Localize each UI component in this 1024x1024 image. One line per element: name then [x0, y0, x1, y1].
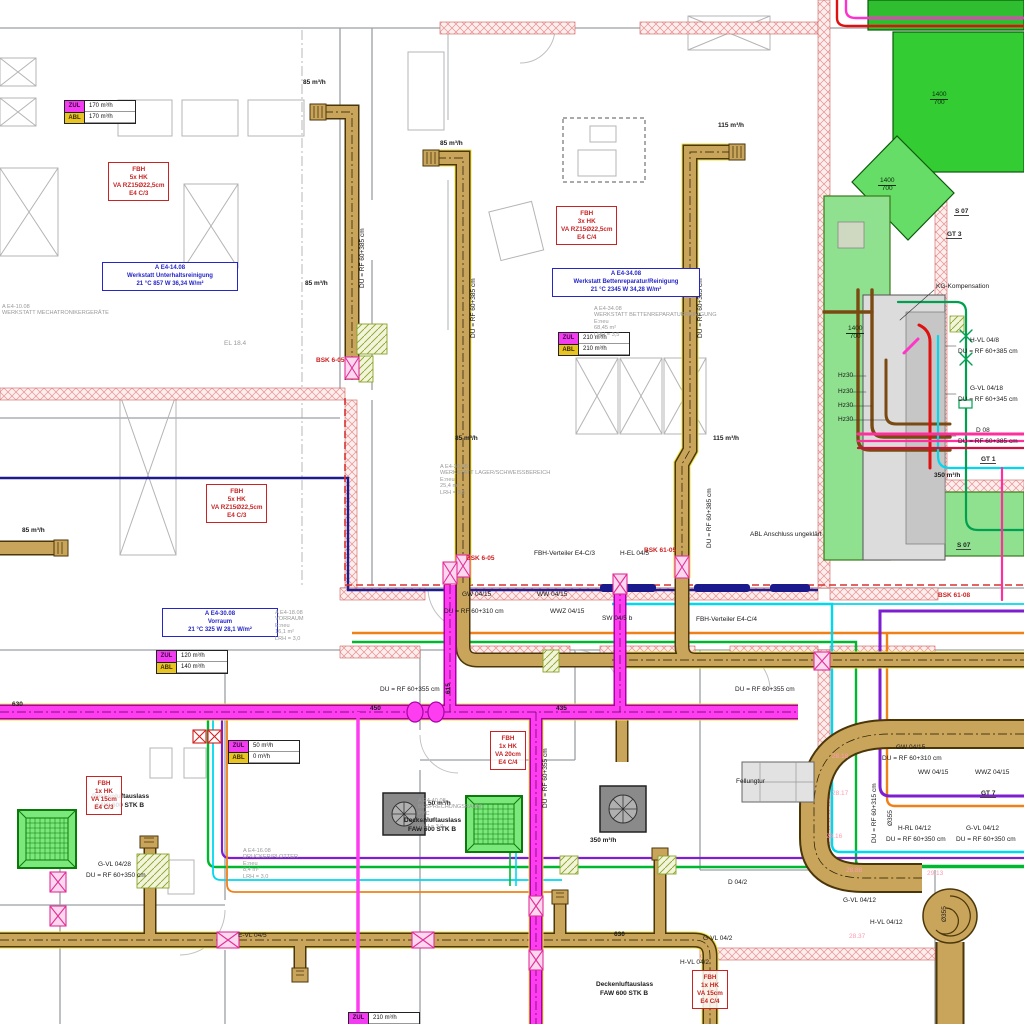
section-tag: GT 1	[980, 456, 996, 464]
drawing-label: 350 m³/h	[590, 838, 616, 845]
bsk-damper-icon	[675, 556, 689, 578]
fbh-info-box: FBH5x HKVA RZ15Ø22,5cmE4 C/3	[206, 484, 267, 523]
drawing-label: 85 m³/h	[440, 141, 463, 148]
drawing-label: Hz30	[838, 389, 853, 396]
bsk-damper-icon	[345, 357, 359, 379]
drawing-label: H-VL 04/12	[870, 920, 903, 927]
fbh-info-box: FBH1x HKVA 15cmE4 C/3	[86, 776, 122, 815]
drawing-label: E-VL 04/5	[238, 933, 267, 940]
swirl-diffuser-icon	[600, 786, 646, 832]
corridor-radiators	[600, 584, 810, 592]
airflow-table: ZUL170 m³/hABL170 m³/h	[64, 100, 136, 124]
drawing-label: 630	[614, 932, 625, 939]
drawing-label: DU = RF 60+355 cm	[735, 687, 795, 694]
duct-size-label: 1400700	[846, 326, 864, 341]
bsk-damper-icon	[217, 932, 239, 948]
drawing-label: Deckenluftauslass	[596, 982, 653, 989]
drawing-label: 85 m³/h	[455, 436, 478, 443]
drawing-label: DU = RF 60+385 cm	[360, 228, 367, 288]
drawing-label: FBH-Verteiler E4-C/4	[696, 617, 757, 624]
bsk-damper-icon	[529, 896, 543, 916]
drawing-label: WW 04/15	[918, 770, 948, 777]
drawing-label: 350 m³/h	[934, 473, 960, 480]
drawing-label: DU = RF 60+350 cm	[86, 873, 146, 880]
drawing-label: H-VL 04/2	[680, 960, 709, 967]
drawing-label: G-VL 04/28	[98, 862, 131, 869]
bsk-damper-icon	[50, 872, 66, 892]
room-info-box: A E4-14.08Werkstatt Unterhaltsreinigung2…	[102, 262, 238, 291]
drawing-label: WW 04/15	[537, 592, 567, 599]
drawing-label: WWZ 04/15	[550, 609, 584, 616]
drawing-label: 630	[12, 702, 23, 709]
drawing-label: Ø355	[888, 810, 895, 826]
drawing-label: DU = RF 60+350 cm	[956, 837, 1016, 844]
duct-size-label: 1400700	[878, 178, 896, 193]
drawing-label: GW 04/15	[896, 745, 925, 752]
drawing-label: WWZ 04/15	[975, 770, 1009, 777]
drawing-label: 450	[370, 706, 381, 713]
drawing-label: DU = RF 60+385 cm	[707, 488, 714, 548]
drawing-label: DU = RF 60+385 cm	[958, 349, 1018, 356]
drawing-label: EL 18.4	[224, 341, 246, 348]
drawing-label: Ø355	[942, 906, 949, 922]
drawing-label: DU = RF 60+315 cm	[872, 783, 879, 843]
drawing-label: ABL Anschluss ungeklärt	[750, 532, 822, 539]
fbh-info-box: FBH1x HKVA 15cmE4 C/4	[692, 970, 728, 1009]
drawing-label: DU = RF 60+310 cm	[444, 609, 504, 616]
drawing-label: DU = RF 60+310 cm	[882, 756, 942, 763]
drawing-label: BSK 6-05	[466, 556, 495, 563]
bsk-damper-icon	[613, 574, 627, 594]
room-name-text: A E4-18.08VORRAUME:neu16,1 m²LRH = 3,0	[275, 610, 304, 642]
drawing-label: 85 m³/h	[303, 80, 326, 87]
hvac-floorplan-canvas[interactable]: 85 m³/h85 m³/h115 m³/h85 m³/h85 m³/h115 …	[0, 0, 1024, 1024]
fan-volute	[923, 889, 977, 943]
drawing-label: 29.13	[927, 871, 943, 878]
drawing-label: 28.16	[826, 834, 842, 841]
drawing-label: KG-Kompensation	[936, 284, 989, 291]
airflow-table: ZUL50 m³/hABL0 m³/h	[228, 740, 300, 764]
duct-size-label: 1400700	[930, 92, 948, 107]
drawing-label: Hz30	[838, 403, 853, 410]
drawing-label: GW 04/15	[462, 592, 491, 599]
drawing-label: BSK 61-08	[938, 593, 970, 600]
drawing-label: G-VL 04/12	[966, 826, 999, 833]
drawing-label: 435	[556, 706, 567, 713]
fbh-info-box: FBH3x HKVA RZ15Ø22,5cmE4 C/4	[556, 206, 617, 245]
drawing-label: D 08	[976, 428, 990, 435]
bsk-damper-icon	[814, 652, 830, 670]
drawing-label: DU = RF 60+355 cm	[543, 748, 550, 808]
drawing-label: 28.88	[846, 868, 862, 875]
drawing-label: Hz30	[838, 417, 853, 424]
drawing-label: BSK 6-05	[316, 358, 345, 365]
drawing-label: FAW 600 STK B	[600, 991, 648, 998]
drawing-label: DU = RF 60+355 cm	[380, 687, 440, 694]
drawing-label: DU = RF 60+385 cm	[958, 439, 1018, 446]
airflow-table: ZUL210 m³/hABL210 m³/h	[348, 1012, 420, 1024]
drawing-label: 115 m³/h	[713, 436, 739, 443]
floorplan-drawing	[0, 0, 1024, 1024]
bsk-damper-icon	[529, 950, 543, 970]
room-name-text: A E4-10.08WERKSTATT MECHATRONIKERGERÄTE	[2, 304, 109, 317]
pipe-navy	[0, 478, 818, 590]
drawing-label: 85 m³/h	[22, 528, 45, 535]
fbh-info-box: FBH5x HKVA RZ15Ø22,5cmE4 C/3	[108, 162, 169, 201]
drawing-label: DU = RF 60+350 cm	[886, 837, 946, 844]
drawing-label: 85 m³/h	[305, 281, 328, 288]
drawing-label: G-VL 04/18	[970, 386, 1003, 393]
room-info-box: A E4-34.08Werkstatt Bettenreparatur/Rein…	[552, 268, 700, 297]
supply-grille-icon	[18, 810, 76, 868]
bsk-damper-icon	[50, 906, 66, 926]
section-tag: GT 7	[980, 790, 996, 798]
drawing-label: 28.17	[832, 791, 848, 798]
bsk-damper-icon	[412, 932, 434, 948]
room-info-box: A E4-30.08Vorraum21 °C 325 W 28,1 W/m²	[162, 608, 278, 637]
drawing-label: G-VL 04/2	[703, 936, 732, 943]
drawing-label: 115 m³/h	[718, 123, 744, 130]
room-name-text: A E4-30.08WERKSTATT LAGER/SCHWEISSBEREIC…	[440, 464, 550, 496]
drawing-label: H-VL 04/8	[970, 338, 999, 345]
section-tag: S 07	[956, 542, 971, 550]
drawing-label: 28.18	[832, 754, 848, 761]
drawing-label: Fellungtur	[736, 779, 765, 786]
bsk-damper-icon	[443, 562, 457, 584]
drawing-label: FBH-Verteiler E4-C/3	[534, 551, 595, 558]
drawing-label: 615	[446, 683, 453, 694]
fbh-info-box: FBH1x HKVA 20cmE4 C/4	[490, 731, 526, 770]
drawing-label: 28.37	[849, 934, 865, 941]
section-tag: S 07	[954, 208, 969, 216]
section-tag: GT 3	[946, 231, 962, 239]
airflow-table: ZUL120 m³/hABL140 m³/h	[156, 650, 228, 674]
drawing-label: H-EL 04/5	[620, 551, 649, 558]
duct-end-silencers	[54, 104, 745, 982]
room-name-text: A E4-34.08WERKSTATT BETTENREPARATURREINI…	[594, 306, 717, 338]
drawing-label: D 04/2	[728, 880, 747, 887]
drawing-label: SW 04/5 b	[602, 616, 632, 623]
drawing-label: Hz30	[838, 373, 853, 380]
drawing-label: G-VL 04/12	[843, 898, 876, 905]
drawing-label: DU = RF 60+385 cm	[471, 278, 478, 338]
drawing-label: DU = RF 60+345 cm	[958, 397, 1018, 404]
room-name-text: A E4-40.08BESPRECHUNGSRAUMPVC24,1 m²LRH …	[418, 798, 481, 830]
drawing-label: H-RL 04/12	[898, 826, 931, 833]
room-name-text: A E4-16.08DRUCKER/PLOTTERE:neu8,4 m²LRH …	[243, 848, 298, 880]
